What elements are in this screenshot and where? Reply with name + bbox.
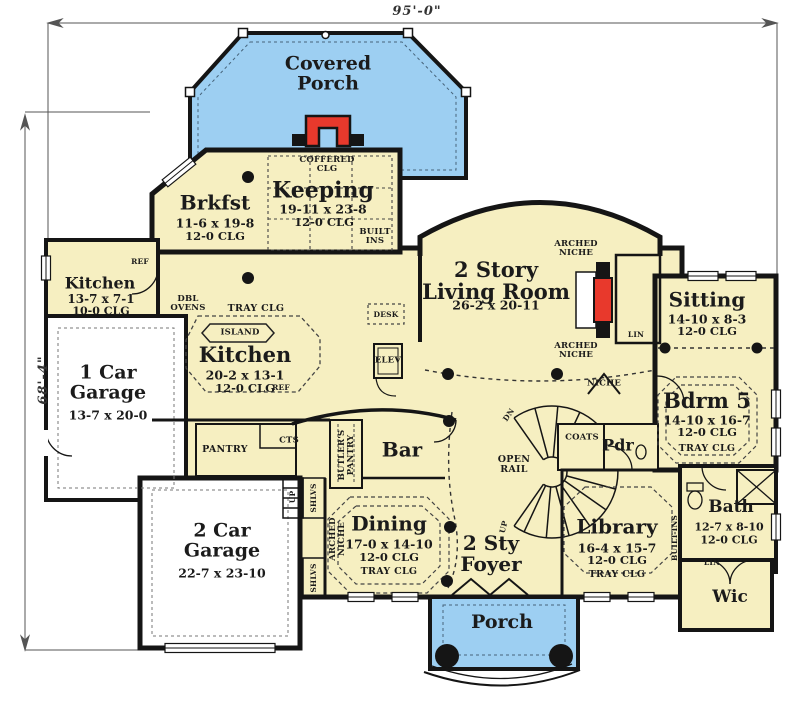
two-car-garage-shape [140, 478, 300, 648]
porch-column-left [435, 644, 459, 668]
floor-plan: 95'-0" 68'-4" Covered Porch Brkfst 11-6 … [0, 0, 800, 703]
one-car-garage-shape [46, 316, 186, 500]
kitchen-island [202, 324, 274, 342]
coats-closet [558, 424, 604, 470]
floor-plan-canvas [0, 0, 800, 703]
porch-steps [424, 670, 580, 686]
living-fireplace [576, 262, 612, 338]
